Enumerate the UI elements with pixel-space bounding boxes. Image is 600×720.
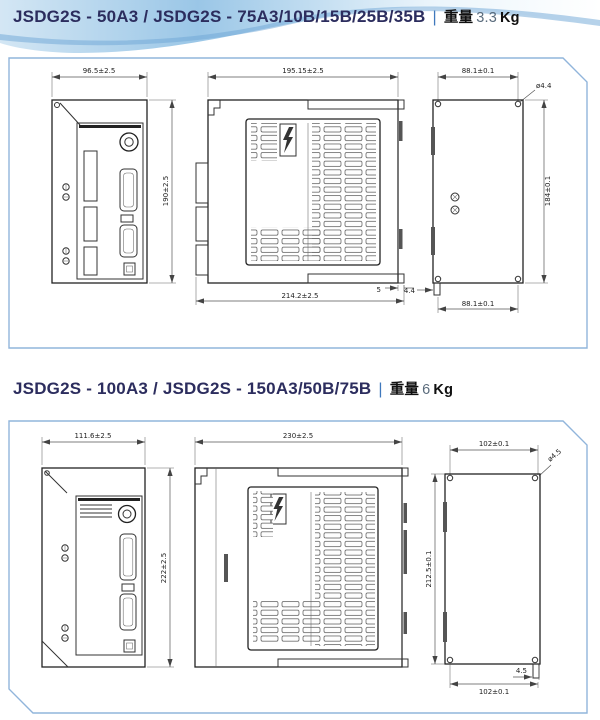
rear-hole-pitch-bottom-dim: 88.1±0.1 bbox=[462, 300, 495, 308]
rear-hole-dia-dim: ø4.4 bbox=[536, 82, 552, 90]
weight-value: 3.3 bbox=[476, 10, 497, 26]
section2-drawing-panel: 111.6±2.5 bbox=[8, 420, 588, 714]
side-depth-dim: 195.15±2.5 bbox=[282, 67, 324, 75]
datasheet-page: JSDG2S - 50A3 / JSDG2S - 75A3/10B/15B/25… bbox=[0, 0, 600, 720]
rear-hole-pitch-height-dim: 212.5±0.1 bbox=[425, 550, 433, 587]
title-separator: | bbox=[378, 381, 382, 399]
rear-hole-pitch-bottom-dim: 102±0.1 bbox=[479, 688, 509, 696]
rear-hole-pitch-top-dim: 88.1±0.1 bbox=[462, 67, 495, 75]
section2-drawing: 111.6±2.5 bbox=[8, 420, 588, 714]
section1-title: JSDG2S - 50A3 / JSDG2S - 75A3/10B/15B/25… bbox=[13, 6, 520, 27]
model-name: JSDG2S - 100A3 / JSDG2S - 150A3/50B/75B bbox=[13, 379, 371, 399]
weight-unit: Kg bbox=[500, 10, 520, 26]
rear-hole-pitch-height-dim: 184±0.1 bbox=[544, 176, 552, 206]
model-name: JSDG2S - 50A3 / JSDG2S - 75A3/10B/15B/25… bbox=[13, 7, 425, 27]
weight-unit: Kg bbox=[433, 382, 453, 398]
front-height-dim: 190±2.5 bbox=[162, 176, 170, 206]
rear-tab-width-dim: 4.4 bbox=[404, 287, 416, 295]
weight-label: 重量 bbox=[444, 6, 473, 27]
bracket-offset-dim: 5 bbox=[377, 286, 381, 294]
section2-title: JSDG2S - 100A3 / JSDG2S - 150A3/50B/75B … bbox=[13, 378, 453, 399]
section1-drawing-panel: 96.5±2.5 bbox=[8, 57, 588, 349]
title-separator: | bbox=[432, 9, 436, 27]
side-depth-dim: 230±2.5 bbox=[283, 432, 313, 440]
panel-frame bbox=[9, 421, 587, 713]
side-handle-slot bbox=[224, 554, 228, 582]
section1-drawing: 96.5±2.5 bbox=[8, 57, 588, 349]
overall-depth-dim: 214.2±2.5 bbox=[281, 292, 318, 300]
front-width-dim: 111.6±2.5 bbox=[74, 432, 111, 440]
front-width-dim: 96.5±2.5 bbox=[83, 67, 116, 75]
front-height-dim: 222±2.5 bbox=[160, 553, 168, 583]
rear-hole-pitch-top-dim: 102±0.1 bbox=[479, 440, 509, 448]
weight-label: 重量 bbox=[390, 378, 419, 399]
rear-tab-width-dim: 4.5 bbox=[516, 667, 527, 675]
panel-frame bbox=[9, 58, 587, 348]
weight-value: 6 bbox=[422, 382, 430, 398]
